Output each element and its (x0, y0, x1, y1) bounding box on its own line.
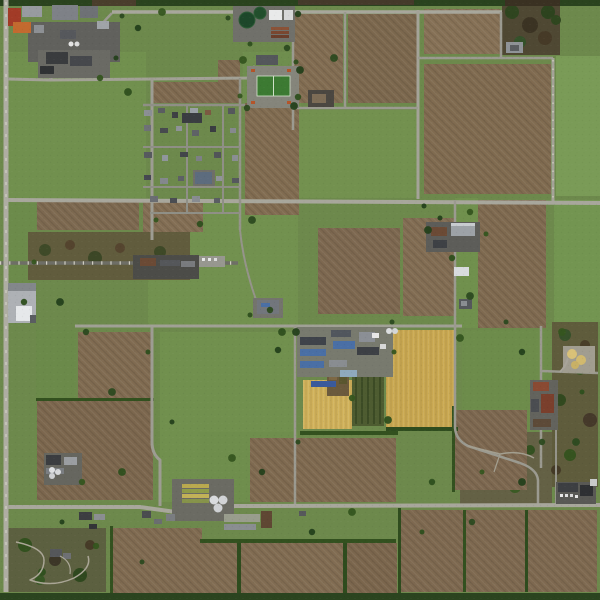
map-canvas (0, 0, 600, 600)
map-overview (0, 0, 600, 600)
terrain-noise-overlay (0, 0, 600, 600)
